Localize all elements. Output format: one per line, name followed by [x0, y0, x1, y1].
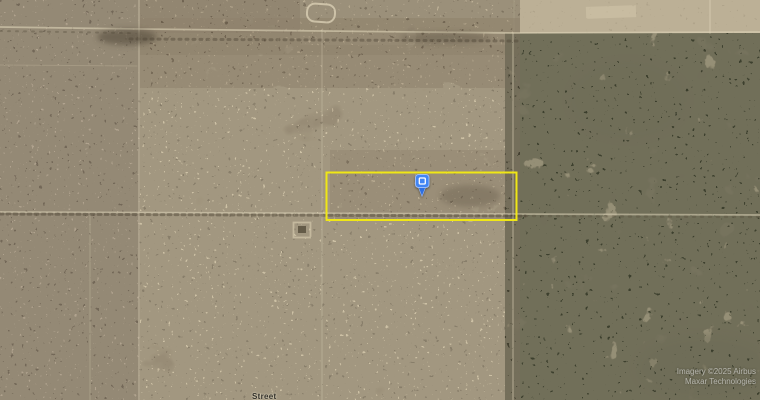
attribution-line-1: Imagery ©2025 Airbus — [677, 367, 756, 377]
satellite-imagery — [0, 0, 760, 400]
map-viewport[interactable]: Street Imagery ©2025 Airbus Maxar Techno… — [0, 0, 760, 400]
attribution-line-2: Maxar Technologies — [677, 377, 756, 387]
fenced-plot-structure — [298, 226, 306, 233]
cleared-pad — [586, 5, 636, 19]
road-label: Street — [252, 392, 276, 400]
map-attribution: Imagery ©2025 Airbus Maxar Technologies — [677, 367, 756, 387]
shrub-speckle-layer — [0, 0, 760, 400]
